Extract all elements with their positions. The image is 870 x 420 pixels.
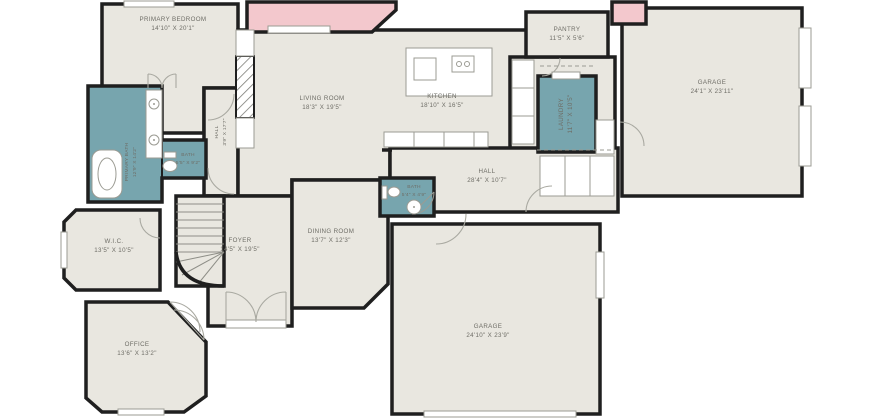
toilet-icon: [388, 187, 400, 197]
label-primary-wc-dims: 5'5" X 9'2": [176, 160, 200, 166]
label-dining-dims: 13'7" X 12'3": [311, 237, 351, 244]
label-foyer-name: FOYER: [228, 237, 251, 244]
hall-closet: [540, 156, 614, 196]
room-accent-top-right: [612, 2, 646, 24]
label-pantry-name: PANTRY: [554, 26, 581, 33]
label-hall-upper-name: HALL: [214, 125, 220, 138]
label-hall-main-dims: 28'4" X 10'7": [467, 177, 507, 184]
kitchen-island: [406, 48, 492, 96]
floor-plan-canvas: PRIMARY BEDROOM 14'10" X 20'1" PANTRY 11…: [0, 0, 870, 420]
label-hall-main-name: HALL: [479, 168, 496, 175]
label-wic-dims: 13'5" X 10'5": [94, 247, 134, 254]
label-living-room-name: LIVING ROOM: [299, 95, 344, 102]
toilet-tank: [382, 186, 387, 199]
label-wic-name: W.I.C.: [105, 238, 124, 245]
label-kitchen-name: KITCHEN: [427, 93, 457, 100]
laundry-cabinet: [596, 120, 614, 154]
label-kitchen-dims: 18'10" X 16'5": [420, 102, 463, 109]
opening: [552, 72, 580, 79]
bathtub: [92, 150, 122, 198]
label-office-name: OFFICE: [125, 341, 150, 348]
label-garage-right-name: GARAGE: [698, 79, 727, 86]
window: [124, 1, 174, 7]
label-garage-bottom-dims: 24'10" X 23'9": [466, 332, 509, 339]
room-office: [86, 302, 206, 412]
label-foyer-dims: 14'5" X 19'5": [220, 246, 260, 253]
room-hall-upper: [204, 88, 238, 196]
room-dining: [292, 180, 388, 308]
label-office-dims: 13'6" X 13'2": [117, 350, 157, 357]
label-pantry-dims: 11'5" X 5'6": [549, 35, 584, 42]
label-hall-bath-name: BATH: [407, 184, 421, 190]
garage-door: [799, 28, 811, 88]
window: [596, 252, 604, 298]
label-primary-bedroom-name: PRIMARY BEDROOM: [140, 16, 207, 23]
window: [61, 232, 67, 268]
label-living-room-dims: 18'3" X 19'5": [302, 104, 342, 111]
label-hall-upper-dims: 3'9" X 17'7": [222, 118, 228, 145]
label-dining-name: DINING ROOM: [308, 228, 354, 235]
floor-plan-page: PRIMARY BEDROOM 14'10" X 20'1" PANTRY 11…: [0, 0, 870, 420]
room-garage-bottom: [392, 224, 600, 414]
label-laundry-name: LAUNDRY: [558, 98, 565, 130]
opening: [268, 26, 330, 33]
room-garage-right: [622, 8, 802, 196]
label-garage-bottom-name: GARAGE: [474, 323, 503, 330]
label-primary-bath-dims: 12'9" X 14'2": [132, 147, 138, 177]
label-primary-wc-name: BATH: [181, 152, 195, 158]
kitchen-counter: [512, 60, 534, 144]
label-primary-bath-name: PRIMARY BATH: [124, 142, 130, 181]
bar-counter: [384, 132, 488, 147]
chase-hatched: [236, 30, 254, 148]
window: [118, 409, 164, 415]
label-primary-bedroom-dims: 14'10" X 20'1": [151, 25, 194, 32]
garage-door: [799, 106, 811, 166]
toilet-tank: [164, 152, 176, 158]
garage-door-opening: [424, 411, 576, 417]
label-laundry-dims: 11'7" X 10'5": [567, 94, 574, 133]
label-hall-bath-dims: 5'4" X 4'9": [402, 192, 426, 198]
label-garage-right-dims: 24'1" X 23'11": [691, 88, 734, 95]
